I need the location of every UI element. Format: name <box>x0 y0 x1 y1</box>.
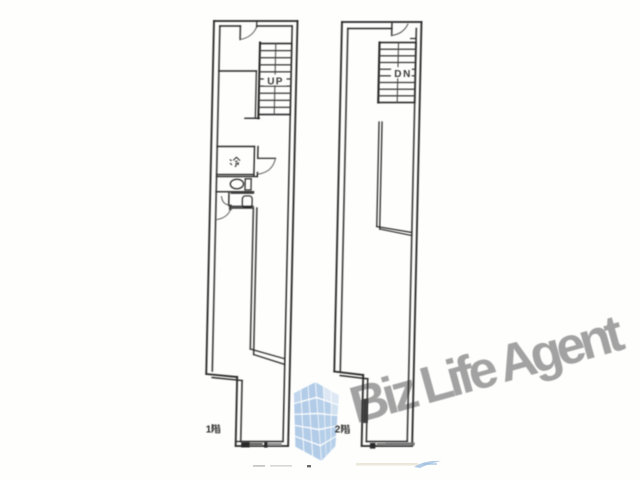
svg-text:1: 1 <box>206 424 212 435</box>
svg-text:DN: DN <box>394 69 412 80</box>
svg-text:UP: UP <box>267 76 283 87</box>
svg-text:2: 2 <box>335 425 341 436</box>
